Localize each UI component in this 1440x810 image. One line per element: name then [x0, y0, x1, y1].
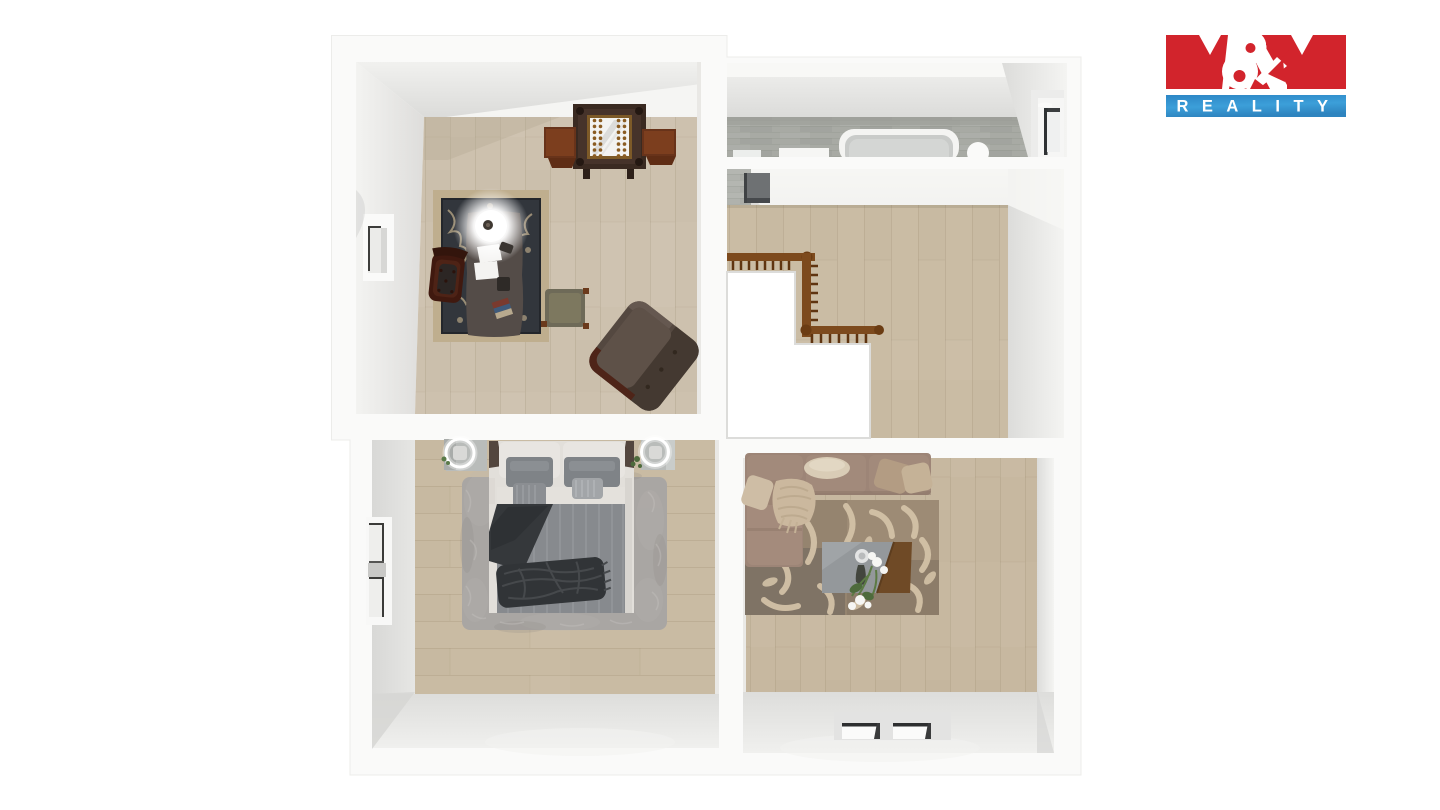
- svg-text:REALITY: REALITY: [1176, 98, 1341, 116]
